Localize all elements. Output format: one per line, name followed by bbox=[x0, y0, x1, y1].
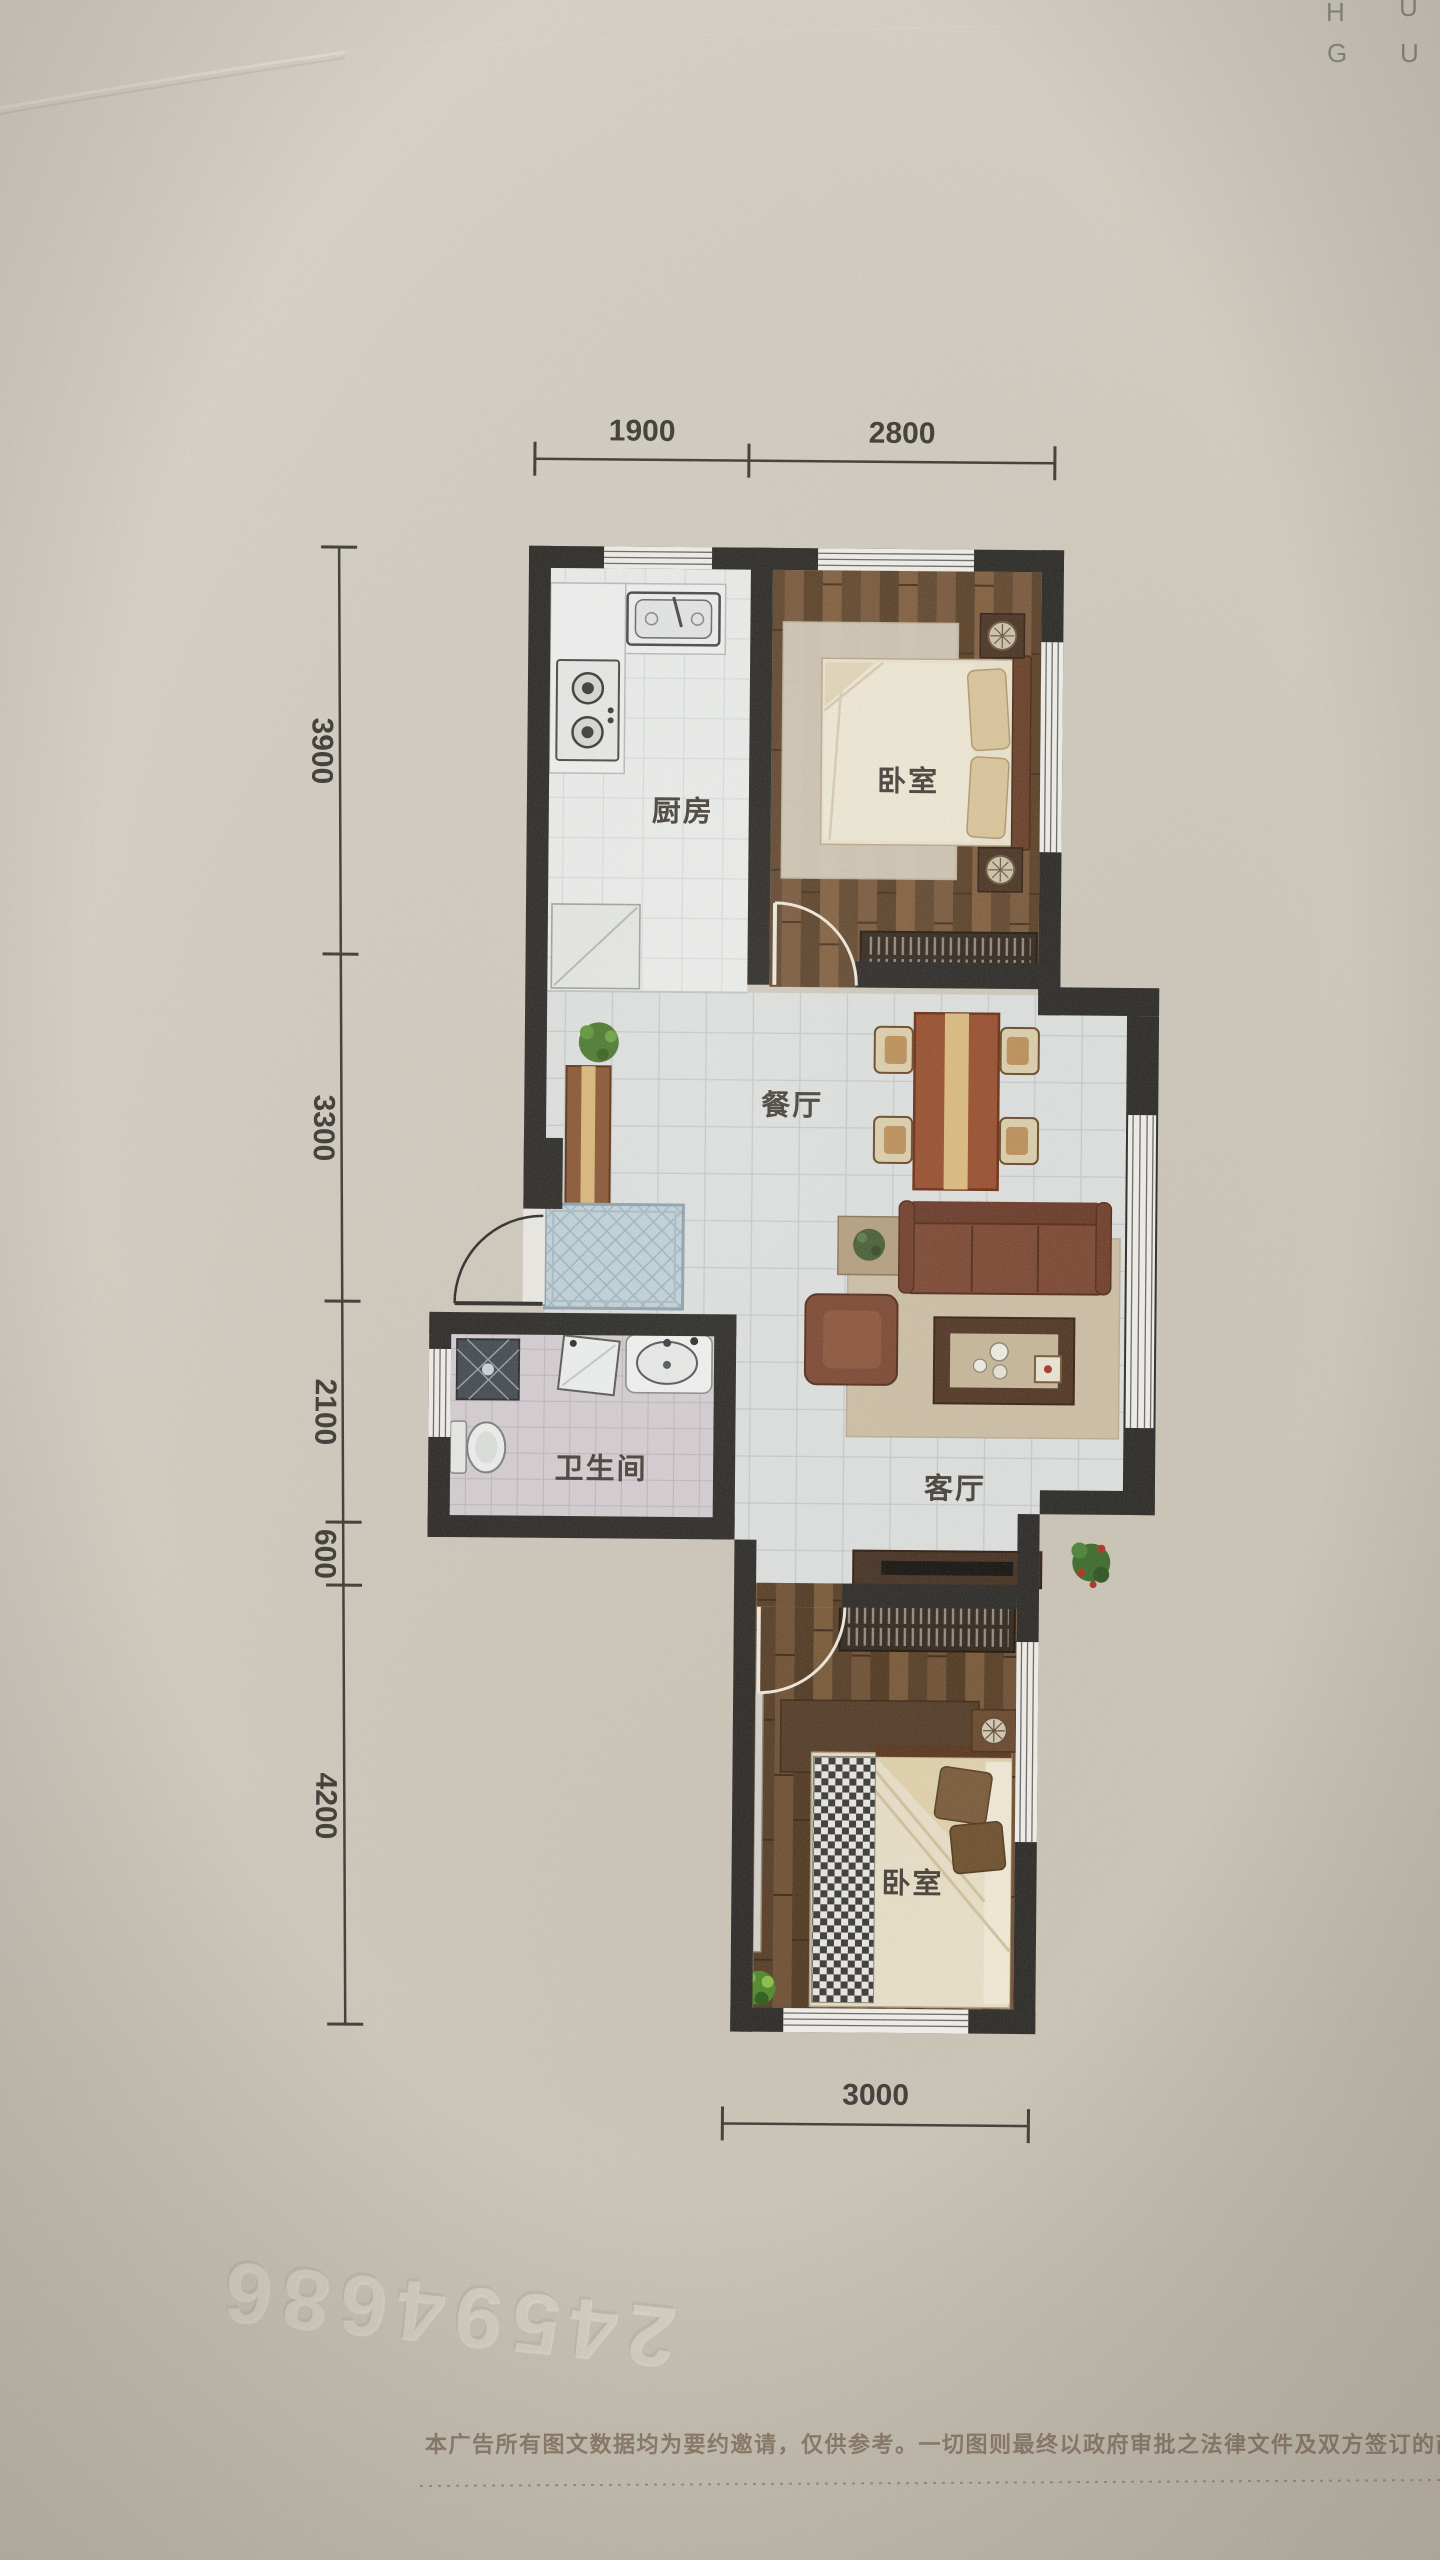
floor-plan-photo: H U G U bbox=[0, 0, 1440, 2560]
photo-grain bbox=[0, 0, 1440, 2560]
